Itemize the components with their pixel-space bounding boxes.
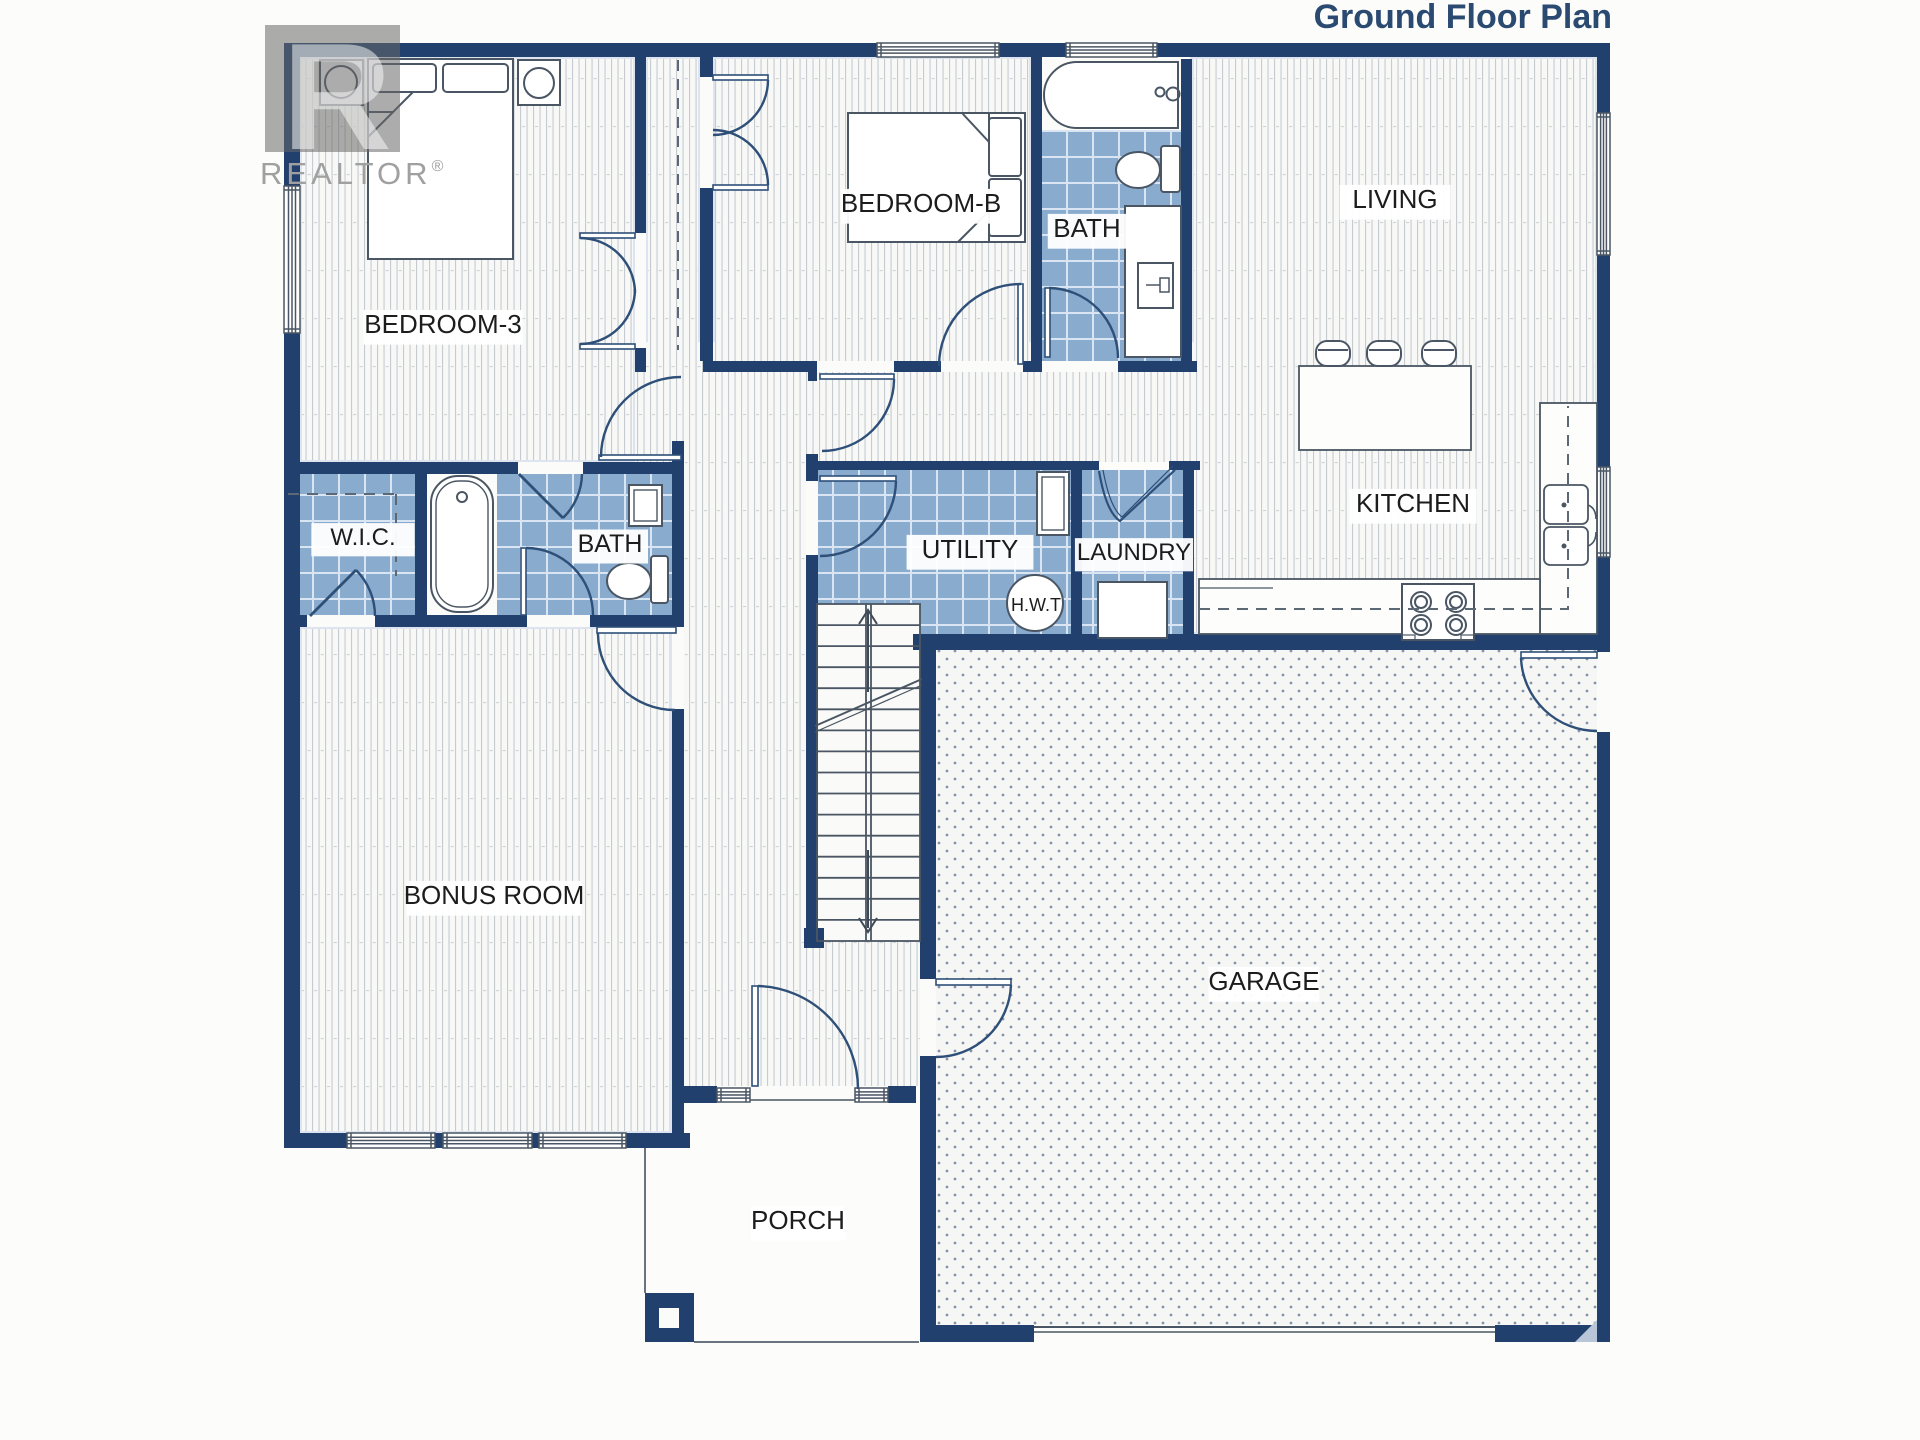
svg-text:BEDROOM-B: BEDROOM-B [841,188,1001,218]
svg-text:UTILITY: UTILITY [922,534,1019,564]
svg-text:LAUNDRY: LAUNDRY [1077,539,1191,566]
svg-text:W.I.C.: W.I.C. [330,524,395,551]
svg-text:LIVING: LIVING [1352,184,1437,214]
svg-text:KITCHEN: KITCHEN [1356,488,1470,518]
svg-text:Ground Floor Plan: Ground Floor Plan [1314,0,1612,36]
svg-text:BONUS ROOM: BONUS ROOM [404,880,585,910]
svg-text:PORCH: PORCH [751,1205,845,1235]
svg-text:BATH: BATH [578,530,643,558]
svg-text:GARAGE: GARAGE [1208,966,1319,996]
svg-text:REALTOR®: REALTOR® [260,156,447,191]
svg-text:BEDROOM-3: BEDROOM-3 [364,309,521,339]
svg-text:H.W.T: H.W.T [1011,595,1061,615]
svg-text:BATH: BATH [1053,213,1120,243]
